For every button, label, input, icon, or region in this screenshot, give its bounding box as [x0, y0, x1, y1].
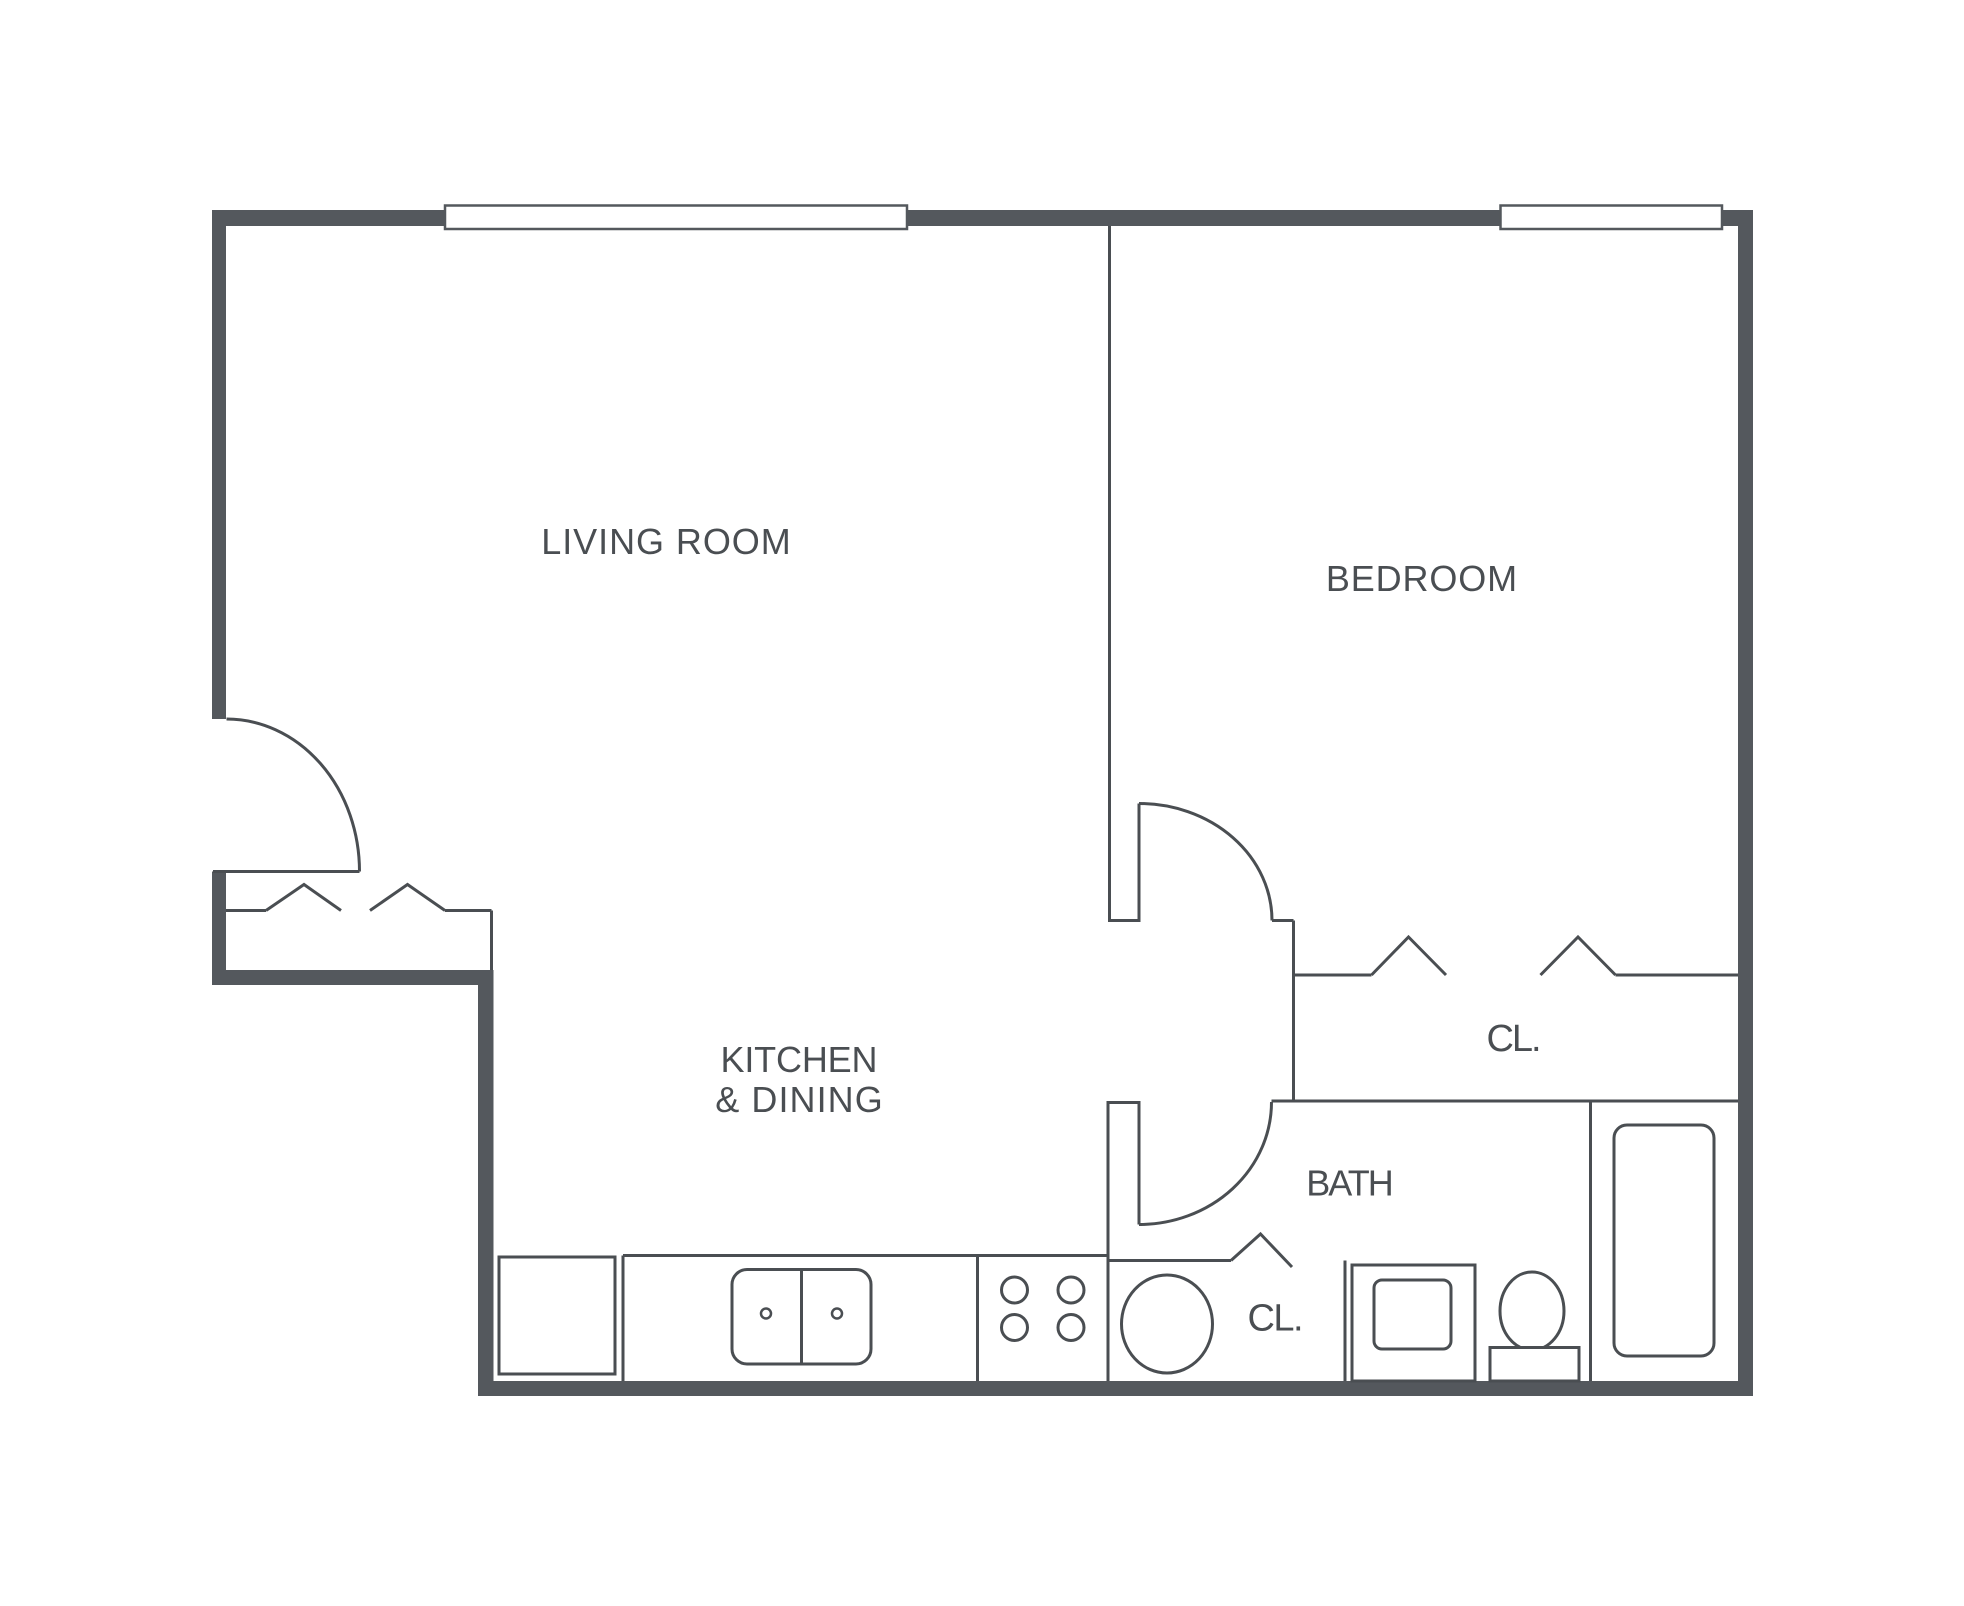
- svg-text:CL.: CL.: [1487, 1018, 1542, 1060]
- svg-text:& DINING: & DINING: [715, 1079, 883, 1120]
- svg-text:CL.: CL.: [1248, 1298, 1304, 1340]
- svg-text:LIVING ROOM: LIVING ROOM: [541, 521, 791, 562]
- svg-text:KITCHEN: KITCHEN: [721, 1039, 878, 1080]
- svg-text:BATH: BATH: [1306, 1163, 1394, 1204]
- svg-text:BEDROOM: BEDROOM: [1326, 558, 1517, 599]
